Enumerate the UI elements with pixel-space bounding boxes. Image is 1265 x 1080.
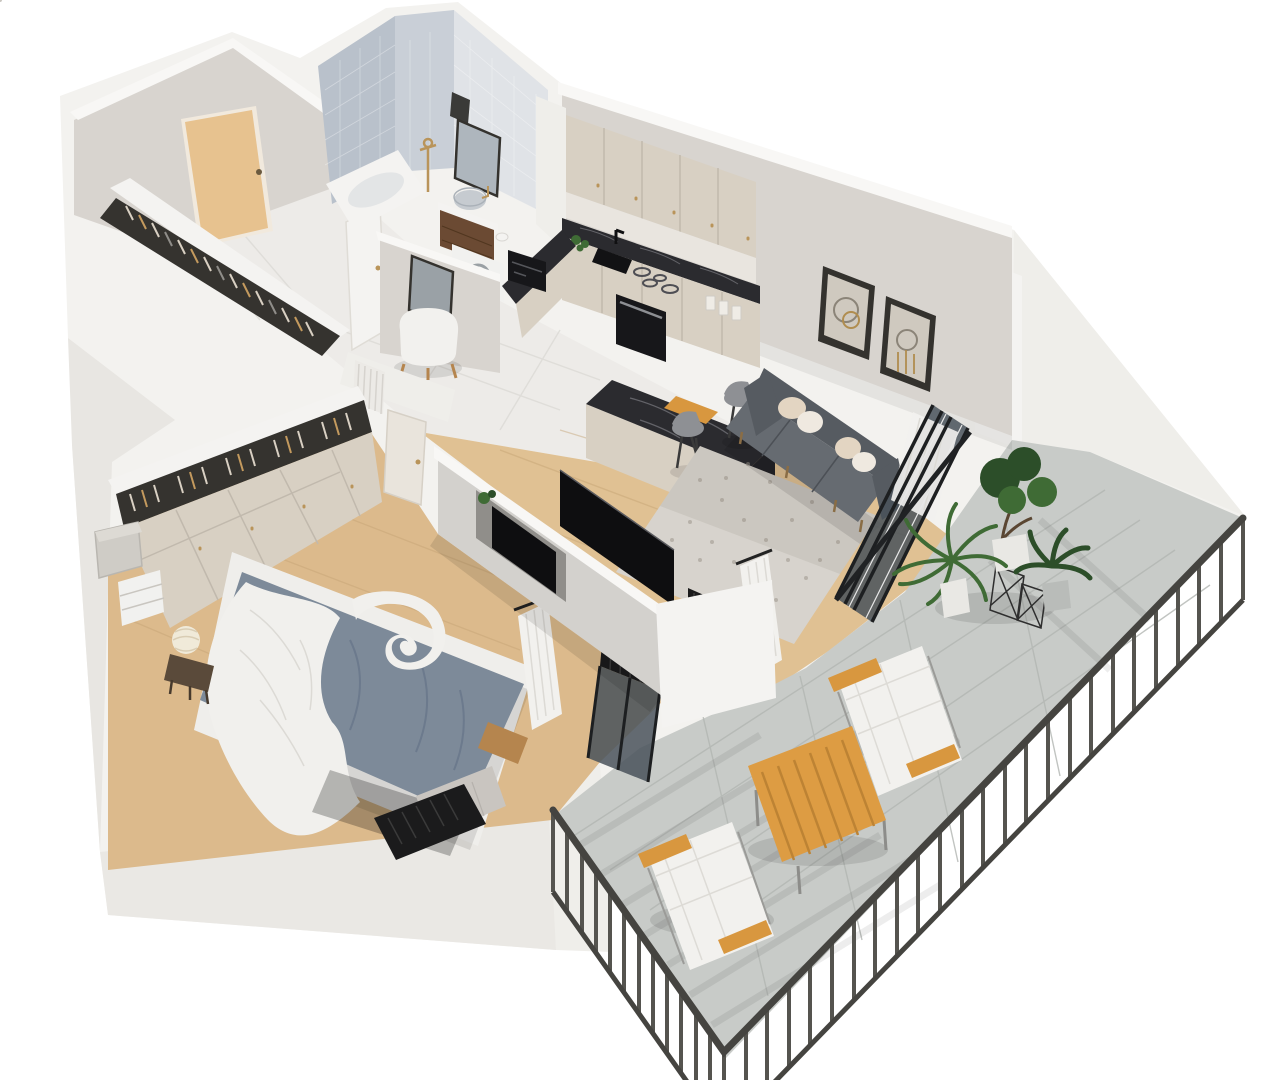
pillow — [797, 411, 823, 433]
pillow — [852, 452, 876, 472]
floorplan-render-canvas — [0, 0, 1265, 1080]
toilet-paper-roll — [496, 233, 508, 241]
apartment-isometric-svg — [0, 0, 1265, 1080]
bedroom-door-handle — [416, 460, 421, 465]
pouf-body — [400, 308, 459, 366]
palm-planter — [940, 578, 970, 618]
bedroom-door-open — [384, 410, 426, 505]
broadleaf-pot-gray — [1042, 580, 1071, 612]
vessel-sink — [454, 190, 486, 210]
bedside-lamp — [172, 626, 200, 654]
bathroom-door-handle — [376, 266, 381, 271]
entry-door-handle — [256, 169, 262, 175]
